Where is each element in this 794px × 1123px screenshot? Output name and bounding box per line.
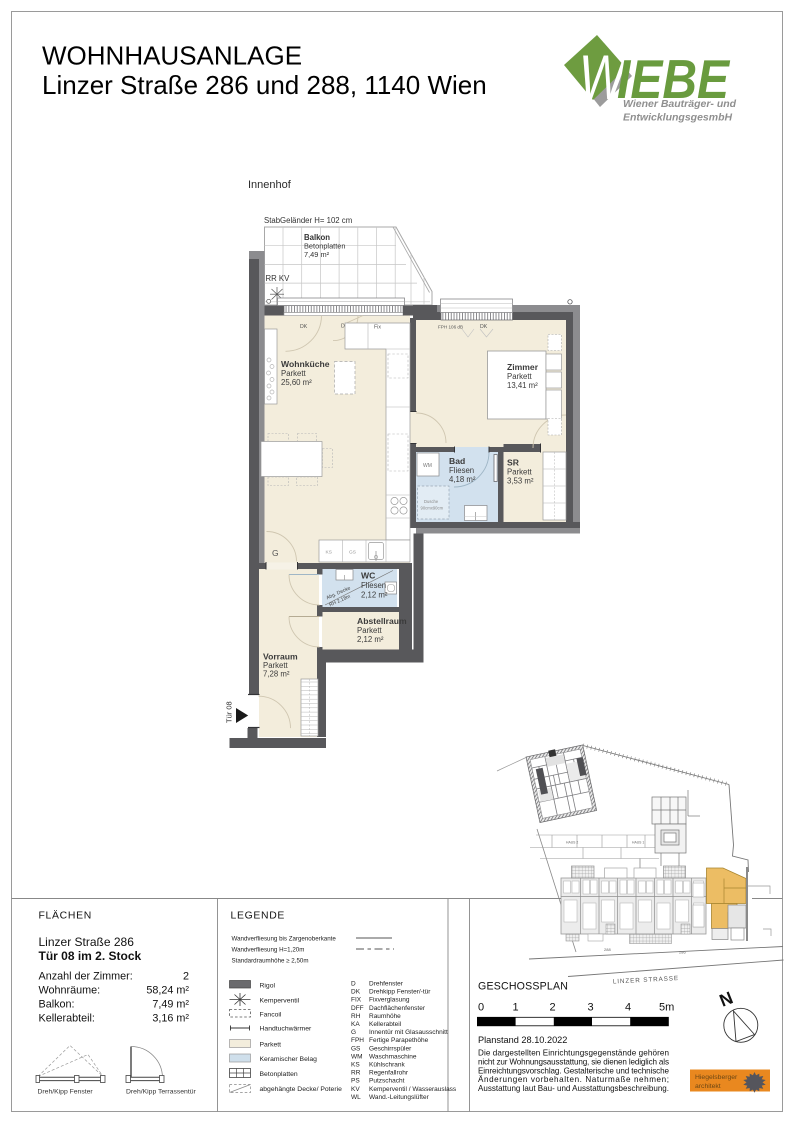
svg-text:DK: DK bbox=[480, 324, 488, 330]
svg-text:GESCHOSSPLAN: GESCHOSSPLAN bbox=[478, 981, 568, 993]
svg-text:Wohnräume:: Wohnräume: bbox=[39, 985, 101, 997]
svg-text:Putzschacht: Putzschacht bbox=[369, 1078, 405, 1085]
svg-text:KV: KV bbox=[351, 1086, 360, 1093]
svg-text:Ausstattung laut Bau- und Auss: Ausstattung laut Bau- und Ausstattungsbe… bbox=[478, 1084, 669, 1093]
svg-text:Abstellraum: Abstellraum bbox=[357, 616, 407, 626]
svg-text:SR: SR bbox=[507, 458, 520, 468]
svg-text:Einreichtungsvorschlag. Gestal: Einreichtungsvorschlag. Gestalterische u… bbox=[478, 1066, 669, 1075]
svg-text:Betonplatten: Betonplatten bbox=[260, 1071, 298, 1078]
svg-text:Fix: Fix bbox=[374, 325, 381, 331]
svg-text:Waschmaschine: Waschmaschine bbox=[369, 1053, 417, 1060]
svg-text:Keramischer Belag: Keramischer Belag bbox=[260, 1056, 318, 1063]
svg-text:GS: GS bbox=[349, 550, 356, 556]
svg-text:Fertige Parapethöhe: Fertige Parapethöhe bbox=[369, 1037, 429, 1044]
svg-text:2,12 m²: 2,12 m² bbox=[361, 591, 388, 600]
svg-text:Parkett: Parkett bbox=[357, 626, 383, 635]
svg-text:FLÄCHEN: FLÄCHEN bbox=[39, 910, 92, 922]
svg-text:G: G bbox=[351, 1029, 356, 1036]
svg-text:Dreh/Kipp Fenster: Dreh/Kipp Fenster bbox=[38, 1089, 94, 1096]
svg-text:Fixverglasung: Fixverglasung bbox=[369, 997, 410, 1004]
svg-text:Parkett: Parkett bbox=[507, 468, 533, 477]
svg-text:WC: WC bbox=[361, 571, 375, 581]
svg-text:Balkon:: Balkon: bbox=[39, 999, 75, 1011]
svg-text:Wandverfliesung H=1,20m: Wandverfliesung H=1,20m bbox=[232, 947, 305, 954]
svg-text:Wiener Bauträger- und: Wiener Bauträger- und bbox=[623, 98, 737, 110]
svg-text:2: 2 bbox=[550, 1002, 556, 1014]
svg-text:Geschirrspüler: Geschirrspüler bbox=[369, 1045, 412, 1052]
svg-text:Tür 08 im 2. Stock: Tür 08 im 2. Stock bbox=[39, 949, 142, 963]
svg-text:7,49 m²: 7,49 m² bbox=[152, 999, 189, 1011]
svg-text:7,49 m²: 7,49 m² bbox=[304, 250, 330, 259]
svg-text:Parkett: Parkett bbox=[507, 372, 533, 381]
svg-text:Linzer Straße 286 und 288, 114: Linzer Straße 286 und 288, 1140 Wien bbox=[42, 70, 487, 100]
svg-text:Innentür mit Glasausschnitt: Innentür mit Glasausschnitt bbox=[369, 1029, 448, 1036]
svg-text:3: 3 bbox=[588, 1002, 594, 1014]
svg-text:WM: WM bbox=[423, 463, 432, 469]
svg-text:Fliesen: Fliesen bbox=[361, 581, 386, 590]
svg-text:Rigol: Rigol bbox=[260, 983, 276, 990]
svg-text:Kemperventil: Kemperventil bbox=[260, 998, 300, 1005]
svg-text:abgehängte Decke/ Poterie: abgehängte Decke/ Poterie bbox=[260, 1086, 343, 1093]
svg-text:1: 1 bbox=[513, 1002, 519, 1014]
svg-text:KS: KS bbox=[326, 550, 332, 556]
svg-text:Hiegelsberger: Hiegelsberger bbox=[695, 1074, 738, 1081]
svg-text:90cmx90cm: 90cmx90cm bbox=[421, 506, 444, 511]
svg-text:FPH 106 dB: FPH 106 dB bbox=[438, 325, 463, 330]
svg-text:Fancoil: Fancoil bbox=[260, 1012, 282, 1019]
svg-text:Handtuchwärmer: Handtuchwärmer bbox=[260, 1026, 312, 1033]
svg-text:Kühlschrank: Kühlschrank bbox=[369, 1062, 406, 1069]
svg-text:RH: RH bbox=[351, 1013, 361, 1020]
svg-text:13,41 m²: 13,41 m² bbox=[507, 381, 538, 390]
svg-text:7,28 m²: 7,28 m² bbox=[263, 670, 290, 679]
svg-text:Kemperventil / Wasserauslass: Kemperventil / Wasserauslass bbox=[369, 1086, 457, 1093]
svg-text:4: 4 bbox=[625, 1002, 631, 1014]
svg-text:D: D bbox=[341, 324, 345, 330]
svg-text:0: 0 bbox=[478, 1002, 484, 1014]
svg-text:Regenfallrohr: Regenfallrohr bbox=[369, 1070, 409, 1077]
svg-text:Änderungen vorbehalten. Naturm: Änderungen vorbehalten. Naturmaße nehmen… bbox=[478, 1075, 669, 1084]
svg-text:Wohnküche: Wohnküche bbox=[281, 359, 330, 369]
svg-text:Linzer Straße 286: Linzer Straße 286 bbox=[39, 935, 135, 949]
svg-text:Dachflächenfenster: Dachflächenfenster bbox=[369, 1005, 426, 1012]
svg-text:Die dargestellten Einrichtungs: Die dargestellten Einrichtungsgegenständ… bbox=[478, 1049, 669, 1058]
svg-text:2: 2 bbox=[183, 971, 189, 983]
svg-text:Zimmer: Zimmer bbox=[507, 362, 539, 372]
svg-text:RR: RR bbox=[351, 1070, 361, 1077]
svg-text:PS: PS bbox=[351, 1078, 360, 1085]
svg-text:nicht zur Wohnungsausstattung,: nicht zur Wohnungsausstattung, sie diene… bbox=[478, 1057, 669, 1066]
svg-text:DK: DK bbox=[300, 324, 308, 330]
svg-text:2,12 m²: 2,12 m² bbox=[357, 635, 384, 644]
svg-text:HAUS 1: HAUS 1 bbox=[632, 841, 644, 845]
svg-text:Planstand 28.10.2022: Planstand 28.10.2022 bbox=[478, 1035, 567, 1045]
svg-text:Dusche: Dusche bbox=[424, 499, 439, 504]
svg-text:WOHNHAUSANLAGE: WOHNHAUSANLAGE bbox=[42, 41, 302, 71]
svg-text:Innenhof: Innenhof bbox=[248, 179, 292, 191]
svg-text:Parkett: Parkett bbox=[260, 1042, 282, 1049]
svg-text:Wandverfliesung bis Zargenober: Wandverfliesung bis Zargenoberkante bbox=[232, 936, 337, 943]
svg-text:GS: GS bbox=[351, 1045, 361, 1052]
svg-text:58,24 m²: 58,24 m² bbox=[146, 985, 189, 997]
svg-text:Bad: Bad bbox=[449, 456, 465, 466]
svg-text:Parkett: Parkett bbox=[281, 369, 307, 378]
svg-text:Vorraum: Vorraum bbox=[263, 652, 298, 662]
svg-text:HAUS 2: HAUS 2 bbox=[566, 841, 578, 845]
svg-text:FIX: FIX bbox=[351, 997, 362, 1004]
svg-text:25,60 m²: 25,60 m² bbox=[281, 378, 312, 387]
svg-text:D: D bbox=[351, 981, 356, 988]
svg-text:DK: DK bbox=[351, 989, 361, 996]
svg-text:Kellerabteil:: Kellerabteil: bbox=[39, 1013, 95, 1025]
svg-text:Wand.-Leitungslüfter: Wand.-Leitungslüfter bbox=[369, 1094, 430, 1101]
svg-text:G: G bbox=[272, 548, 279, 558]
svg-text:architekt: architekt bbox=[695, 1083, 721, 1090]
svg-text:LEGENDE: LEGENDE bbox=[231, 911, 286, 922]
svg-text:4,18 m²: 4,18 m² bbox=[449, 475, 476, 484]
svg-text:Kellerabteil: Kellerabteil bbox=[369, 1021, 402, 1028]
svg-text:WL: WL bbox=[351, 1094, 361, 1101]
svg-text:StabGeländer H= 102 cm: StabGeländer H= 102 cm bbox=[264, 216, 352, 225]
svg-text:Standardraumhöhe ≥ 2,50m: Standardraumhöhe ≥ 2,50m bbox=[232, 958, 309, 965]
svg-text:3,16 m²: 3,16 m² bbox=[152, 1013, 189, 1025]
svg-text:WM: WM bbox=[351, 1053, 363, 1060]
svg-text:Anzahl der Zimmer:: Anzahl der Zimmer: bbox=[39, 971, 133, 983]
svg-text:KA: KA bbox=[351, 1021, 360, 1028]
svg-text:Tür 08: Tür 08 bbox=[225, 701, 234, 723]
svg-text:DFF: DFF bbox=[351, 1005, 364, 1012]
svg-text:Drehfenster: Drehfenster bbox=[369, 981, 404, 988]
svg-text:5m: 5m bbox=[659, 1002, 674, 1014]
svg-text:288: 288 bbox=[604, 947, 611, 952]
svg-text:Raumhöhe: Raumhöhe bbox=[369, 1013, 401, 1020]
svg-text:Dreh/Kipp Terrassentür: Dreh/Kipp Terrassentür bbox=[126, 1089, 197, 1096]
svg-text:3,53 m²: 3,53 m² bbox=[507, 477, 534, 486]
svg-text:Fliesen: Fliesen bbox=[449, 466, 474, 475]
svg-text:FPH: FPH bbox=[351, 1037, 364, 1044]
svg-text:EntwicklungsgesmbH: EntwicklungsgesmbH bbox=[623, 112, 733, 124]
svg-text:KS: KS bbox=[351, 1062, 360, 1069]
svg-text:RR KV: RR KV bbox=[266, 274, 291, 283]
svg-text:Drehkipp Fenster/-tür: Drehkipp Fenster/-tür bbox=[369, 989, 431, 996]
